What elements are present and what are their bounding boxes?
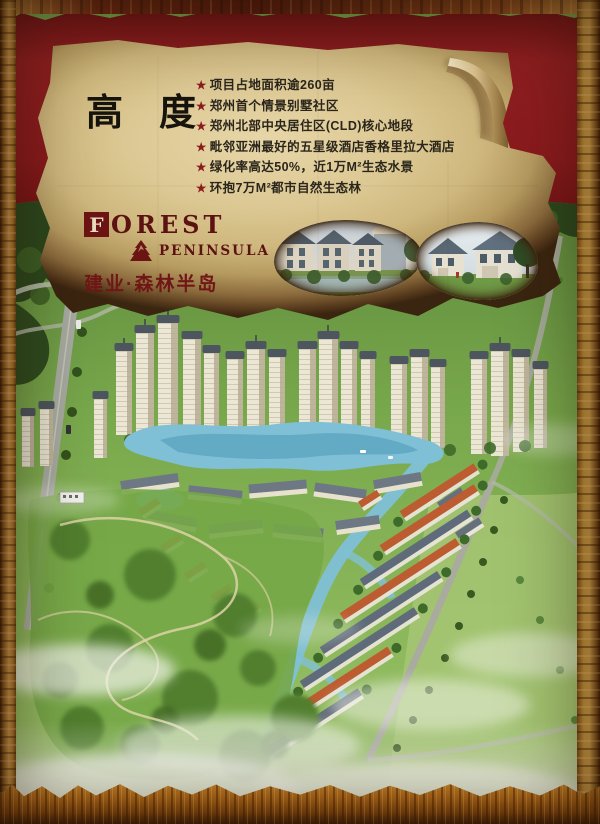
- selling-point-text: 郑州北部中央居住区(CLD)核心地段: [210, 117, 414, 137]
- logo-subname: PENINSULA: [159, 243, 270, 259]
- villa-photo-2-image: [416, 222, 538, 300]
- star-icon: ★: [196, 98, 207, 118]
- villa-photo-2: [416, 222, 538, 300]
- selling-point-text: 毗邻亚洲最好的五星级酒店香格里拉大酒店: [210, 138, 455, 158]
- selling-point-text: 项目占地面积逾260亩: [210, 76, 335, 96]
- brand-logo: FOREST PENINSULA 建业·森林半岛: [84, 212, 270, 296]
- selling-point-item: ★郑州首个情景别墅社区: [196, 97, 541, 118]
- brand-logo-subline: PENINSULA: [128, 240, 270, 262]
- star-icon: ★: [196, 159, 207, 179]
- villa-photo-1-image: [274, 220, 422, 296]
- selling-point-item: ★绿化率高达50%，近1万M²生态水景: [196, 158, 541, 179]
- parchment-scroll: 高度 ★项目占地面积逾260亩 ★郑州首个情景别墅社区 ★郑州北部中央居住区(C…: [18, 36, 574, 328]
- star-icon: ★: [196, 118, 207, 138]
- selling-point-text: 郑州首个情景别墅社区: [210, 97, 339, 117]
- villa-photo-1: [274, 220, 422, 296]
- brand-logo-wordmark: FOREST: [84, 212, 270, 237]
- star-icon: ★: [196, 139, 207, 159]
- selling-point-text: 环抱7万M²都市自然生态林: [210, 179, 362, 199]
- poster: 高度 ★项目占地面积逾260亩 ★郑州首个情景别墅社区 ★郑州北部中央居住区(C…: [0, 0, 600, 824]
- star-icon: ★: [196, 180, 207, 200]
- logo-chinese-name: 建业·森林半岛: [84, 269, 270, 296]
- forest-emblem-icon: [128, 240, 154, 262]
- selling-point-item: ★项目占地面积逾260亩: [196, 76, 541, 97]
- selling-point-item: ★毗邻亚洲最好的五星级酒店香格里拉大酒店: [196, 138, 541, 159]
- logo-wordmark-rest: OREST: [111, 212, 225, 237]
- star-icon: ★: [196, 77, 207, 97]
- selling-point-text: 绿化率高达50%，近1万M²生态水景: [210, 158, 414, 178]
- selling-point-item: ★郑州北部中央居住区(CLD)核心地段: [196, 117, 541, 138]
- selling-point-item: ★环抱7万M²都市自然生态林: [196, 179, 541, 200]
- logo-dropcap: F: [84, 212, 109, 237]
- selling-points-list: ★项目占地面积逾260亩 ★郑州首个情景别墅社区 ★郑州北部中央居住区(CLD)…: [196, 76, 541, 199]
